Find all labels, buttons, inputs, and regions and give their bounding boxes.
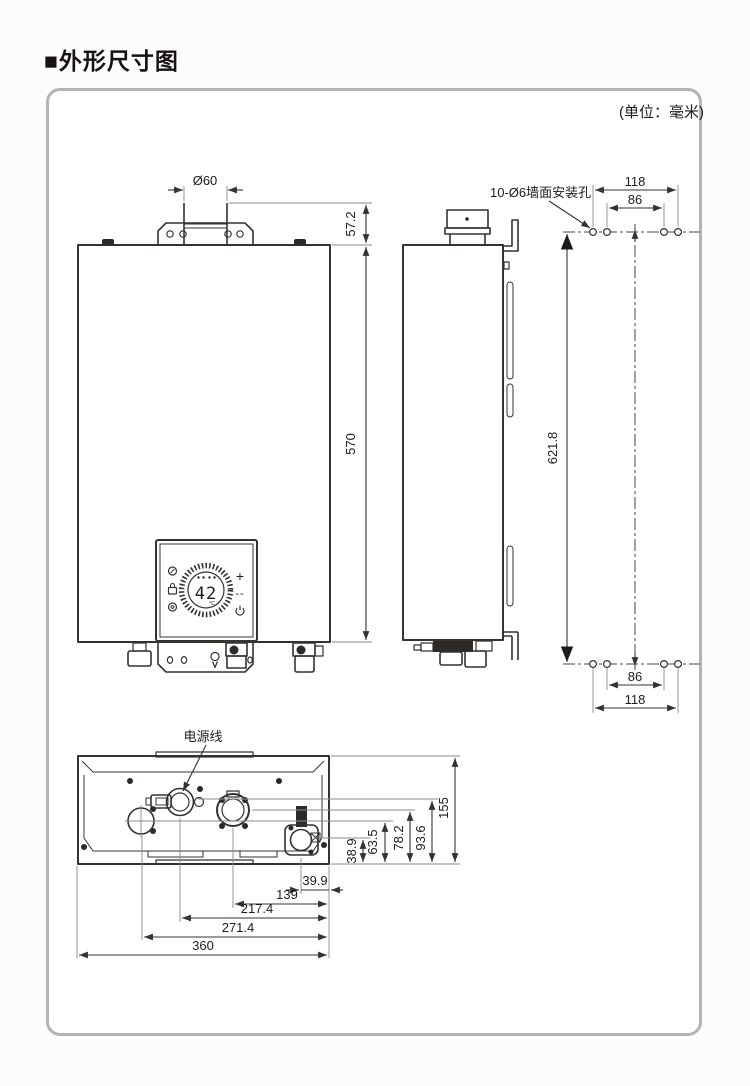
dim-vertical-spacing: 621.8 <box>545 432 560 465</box>
keyhole-slot <box>211 653 219 668</box>
dim-bottom-inner: 86 <box>628 669 642 684</box>
dim-flue-diameter: Ø60 <box>193 173 218 188</box>
dim-h5: 155 <box>436 797 451 819</box>
lock-icon <box>169 584 177 595</box>
dim-top-offset: 57.2 <box>343 211 358 236</box>
wall-hook-top <box>504 220 518 251</box>
dim-w2: 139 <box>276 887 298 902</box>
control-panel: 42 °C + -- <box>156 540 257 641</box>
power-icon <box>236 606 244 616</box>
screw-dots <box>81 778 327 855</box>
front-top-tab-left <box>102 239 114 245</box>
dim-top-inner: 86 <box>628 192 642 207</box>
dim-h1: 38.9 <box>344 838 359 863</box>
dim-h4: 93.6 <box>413 825 428 850</box>
front-bottom-fittings <box>128 643 323 672</box>
dimension-drawing: (单位：毫米) Ø60 57.2 570 <box>0 0 750 1086</box>
mounting-hole-pattern: 10-Ø6墙面安装孔 118 86 621.8 86 118 <box>490 174 700 713</box>
flame-icon <box>169 603 177 611</box>
unit-note: (单位：毫米) <box>619 103 704 121</box>
dim-w3: 217.4 <box>241 901 274 916</box>
front-body-outline <box>78 245 330 642</box>
dim-h3: 78.2 <box>391 825 406 850</box>
mode-icon <box>169 567 177 575</box>
plus-button-label: + <box>236 568 244 584</box>
side-bottom-fittings <box>414 641 492 667</box>
bottom-view: 电源线 38.9 63.5 78.2 93.6 15 <box>77 729 460 958</box>
bottom-view-width-dims: 39.9 139 217.4 271.4 360 <box>77 818 343 958</box>
temperature-unit: °C <box>209 601 215 607</box>
wall-hook-bottom <box>504 632 518 660</box>
minus-button-label: -- <box>235 588 244 600</box>
dim-top-outer: 118 <box>625 174 646 189</box>
dim-w4: 271.4 <box>222 920 255 935</box>
mounting-leader-line <box>549 201 590 228</box>
dim-body-height: 570 <box>343 433 358 455</box>
front-view: Ø60 57.2 570 42 °C <box>78 173 372 672</box>
side-body-outline <box>403 245 503 640</box>
dim-w5: 360 <box>192 938 214 953</box>
front-top-bracket <box>158 223 253 245</box>
dim-w1: 39.9 <box>302 873 327 888</box>
dim-bottom-outer: 118 <box>625 692 646 707</box>
front-top-tab-right <box>294 239 306 245</box>
side-view <box>403 210 518 667</box>
mounting-holes-label: 10-Ø6墙面安装孔 <box>490 185 591 200</box>
dim-h2: 63.5 <box>365 829 380 854</box>
power-cord-label: 电源线 <box>183 729 222 744</box>
